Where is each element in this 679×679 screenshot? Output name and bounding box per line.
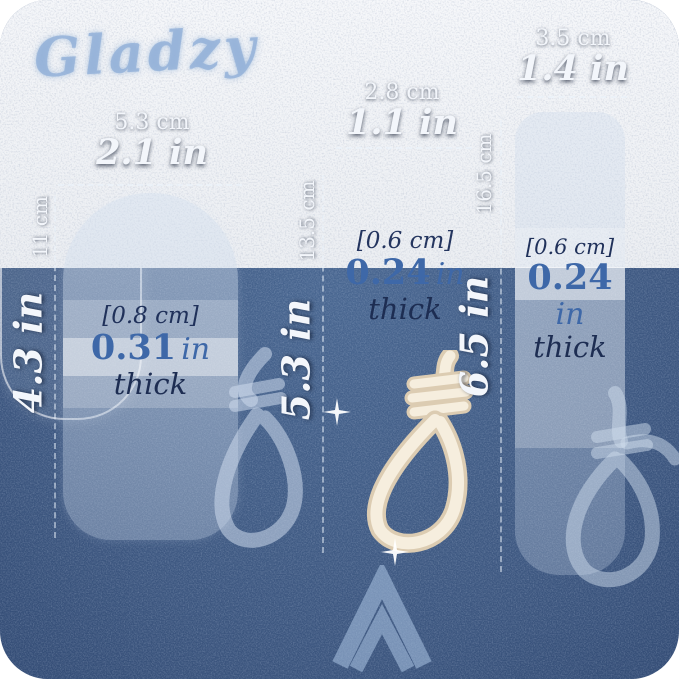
thickness-in-unit: in xyxy=(181,332,210,367)
width-in-text: 2.1 in xyxy=(62,135,242,172)
height-in-slim: 5.3 in xyxy=(274,290,319,430)
width-measure-line-wide xyxy=(58,184,242,186)
thickness-in-value: 0.31 xyxy=(91,327,176,368)
brand-logo: Gladzy xyxy=(32,14,260,90)
height-measure-line-wide xyxy=(54,196,56,538)
height-measure-line-tall xyxy=(500,120,502,572)
thickness-cm-text: [0.6 cm] xyxy=(336,228,474,254)
thickness-in-value: 0.24 xyxy=(527,257,612,298)
height-cm-slim: 13.5 cm xyxy=(295,171,319,271)
height-measure-line-slim xyxy=(322,175,324,553)
width-in-text: 1.4 in xyxy=(493,51,653,88)
thickness-in-text: 0.31 in xyxy=(63,329,238,368)
thickness-in-value: 0.24 xyxy=(345,252,430,293)
product-dimension-card: Gladzy [0.8 cm] 0.31 in thick 5.3 cm 2.1… xyxy=(0,0,679,679)
height-cm-wide: 11 cm xyxy=(28,182,52,272)
thickness-word: thick xyxy=(515,331,625,364)
height-in-tall: 6.5 in xyxy=(452,267,497,407)
width-measure-line-slim xyxy=(336,147,472,149)
thickness-label-wide: [0.8 cm] 0.31 in thick xyxy=(63,303,238,401)
thickness-in-unit: in xyxy=(556,297,585,332)
thickness-label-tall: [0.6 cm] 0.24 in thick xyxy=(515,235,625,364)
thickness-word: thick xyxy=(63,368,238,401)
height-in-wide: 4.3 in xyxy=(6,283,51,423)
width-measure-line-tall xyxy=(517,96,627,98)
width-in-text: 1.1 in xyxy=(322,105,482,142)
chevron-up-icon xyxy=(330,565,440,675)
sparkle-icon xyxy=(323,398,351,426)
thickness-cm-text: [0.8 cm] xyxy=(63,303,238,329)
width-label-slim: 2.8 cm 1.1 in xyxy=(322,80,482,142)
width-label-wide: 5.3 cm 2.1 in xyxy=(62,110,242,172)
thickness-cm-text: [0.6 cm] xyxy=(515,235,625,259)
height-cm-tall: 16.5 cm xyxy=(472,124,496,224)
width-label-tall: 3.5 cm 1.4 in xyxy=(493,26,653,88)
sparkle-icon xyxy=(381,538,409,566)
thickness-in-text: 0.24 in xyxy=(515,259,625,331)
